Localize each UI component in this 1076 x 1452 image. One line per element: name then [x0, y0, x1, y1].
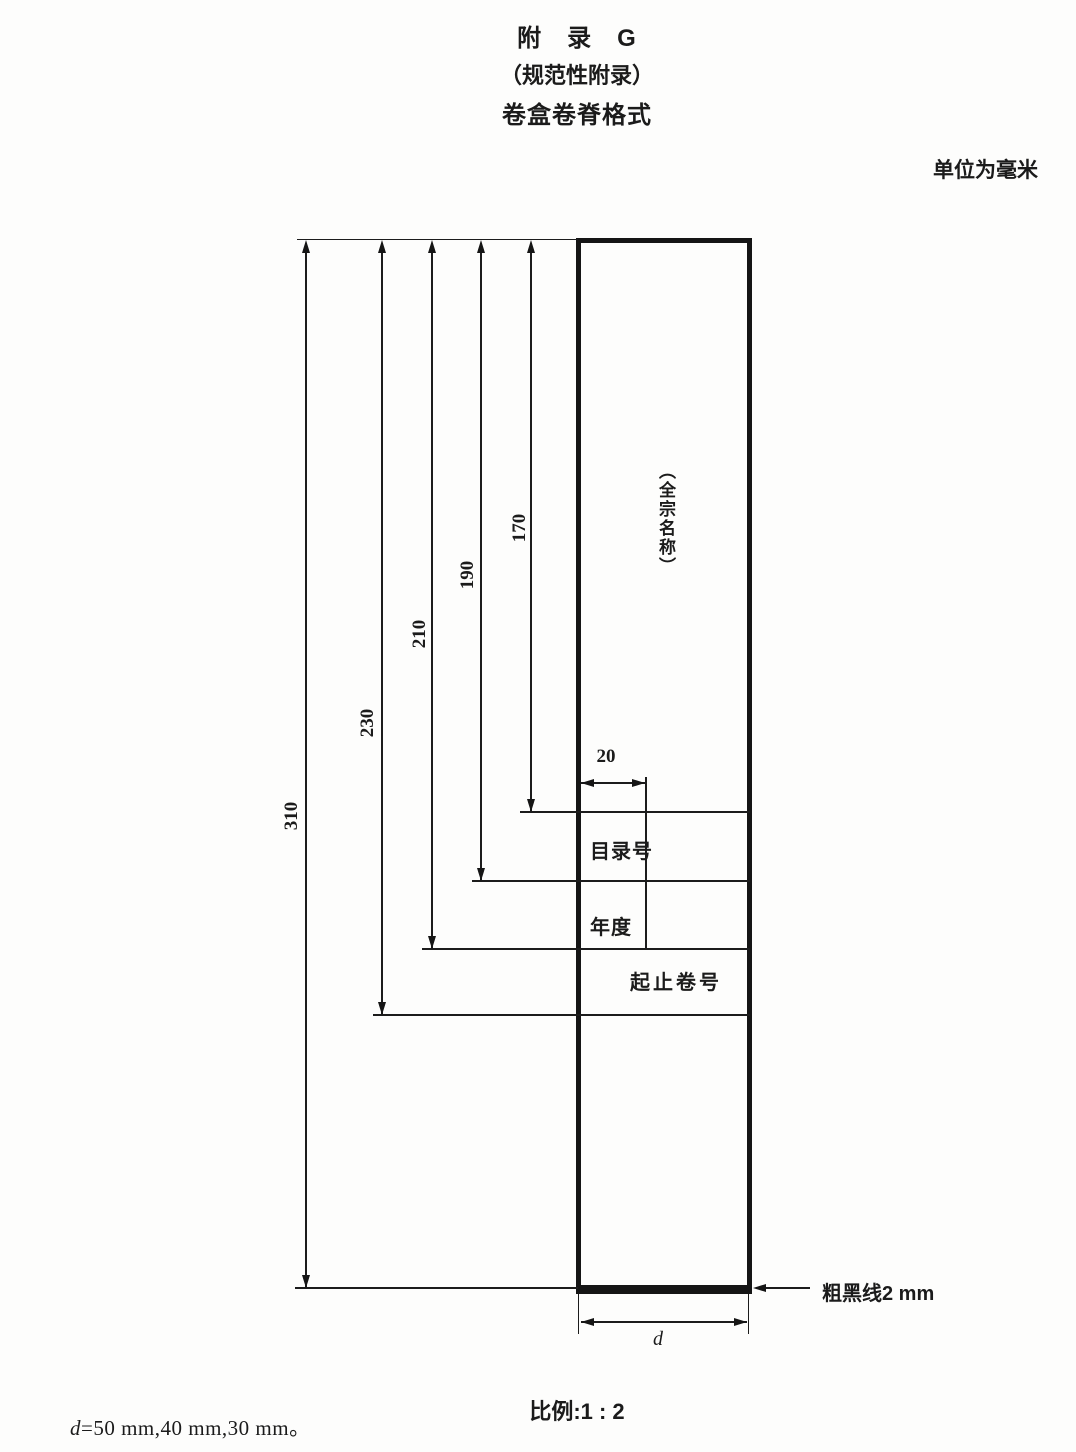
- dim-line-210: [431, 243, 433, 949]
- dim-label-170: 170: [511, 498, 529, 558]
- row-line-210: [422, 948, 750, 950]
- dim-label-230: 230: [359, 693, 377, 753]
- scale-note: 比例:1 : 2: [507, 1394, 647, 1426]
- row-line-230: [373, 1014, 750, 1016]
- dim-label-210: 210: [411, 604, 429, 664]
- dim-label-310: 310: [283, 786, 301, 846]
- arrow-up-icon: [378, 240, 386, 253]
- dim-label-20: 20: [588, 746, 624, 768]
- arrow-up-icon: [477, 240, 485, 253]
- arrow-up-icon: [302, 240, 310, 253]
- thick-line-note: 粗黑线2 mm: [822, 1277, 934, 1306]
- row-label-volume-range: 起止卷号: [630, 966, 722, 995]
- dim-line-190: [480, 243, 482, 881]
- arrow-left-icon: [581, 779, 594, 787]
- dim-line-310: [305, 243, 307, 1288]
- arrow-up-icon: [527, 240, 535, 253]
- dim-line-170: [530, 243, 532, 812]
- row-line-190: [472, 880, 750, 882]
- top-extension-line: [297, 239, 578, 240]
- row-label-year: 年度: [590, 911, 632, 940]
- arrow-down-icon: [302, 1275, 310, 1288]
- arrow-right-icon: [734, 1318, 747, 1326]
- dim-line-d: [581, 1321, 747, 1323]
- d-values: =50 mm,40 mm,30 mm。: [81, 1416, 311, 1440]
- dim-line-230: [381, 243, 383, 1015]
- spine-archive-name-label: （全宗名称）: [646, 462, 676, 582]
- d-variable: d: [70, 1416, 81, 1440]
- unit-note: 单位为毫米: [933, 154, 1038, 184]
- document-page: 附 录 G （规范性附录） 卷盒卷脊格式 单位为毫米 （全宗名称） 目录号 年度…: [0, 0, 1076, 1452]
- dim-label-190: 190: [459, 545, 477, 605]
- d-values-note: d=50 mm,40 mm,30 mm。: [70, 1412, 311, 1442]
- appendix-type: （规范性附录）: [377, 58, 777, 90]
- dim-label-d: d: [648, 1328, 668, 1351]
- arrow-right-icon: [632, 779, 645, 787]
- arrow-down-icon: [378, 1002, 386, 1015]
- arrow-down-icon: [428, 936, 436, 949]
- appendix-title: 附 录 G: [377, 18, 777, 53]
- d-extension-left: [578, 1294, 579, 1334]
- appendix-subject: 卷盒卷脊格式: [377, 95, 777, 130]
- row-label-catalog-number: 目录号: [590, 835, 653, 864]
- arrow-down-icon: [527, 799, 535, 812]
- arrow-left-icon: [753, 1284, 766, 1292]
- arrow-down-icon: [477, 868, 485, 881]
- arrow-up-icon: [428, 240, 436, 253]
- arrow-left-icon: [581, 1318, 594, 1326]
- row-line-170: [520, 811, 750, 813]
- d-extension-right: [748, 1294, 749, 1334]
- bottom-extension-line: [295, 1287, 578, 1289]
